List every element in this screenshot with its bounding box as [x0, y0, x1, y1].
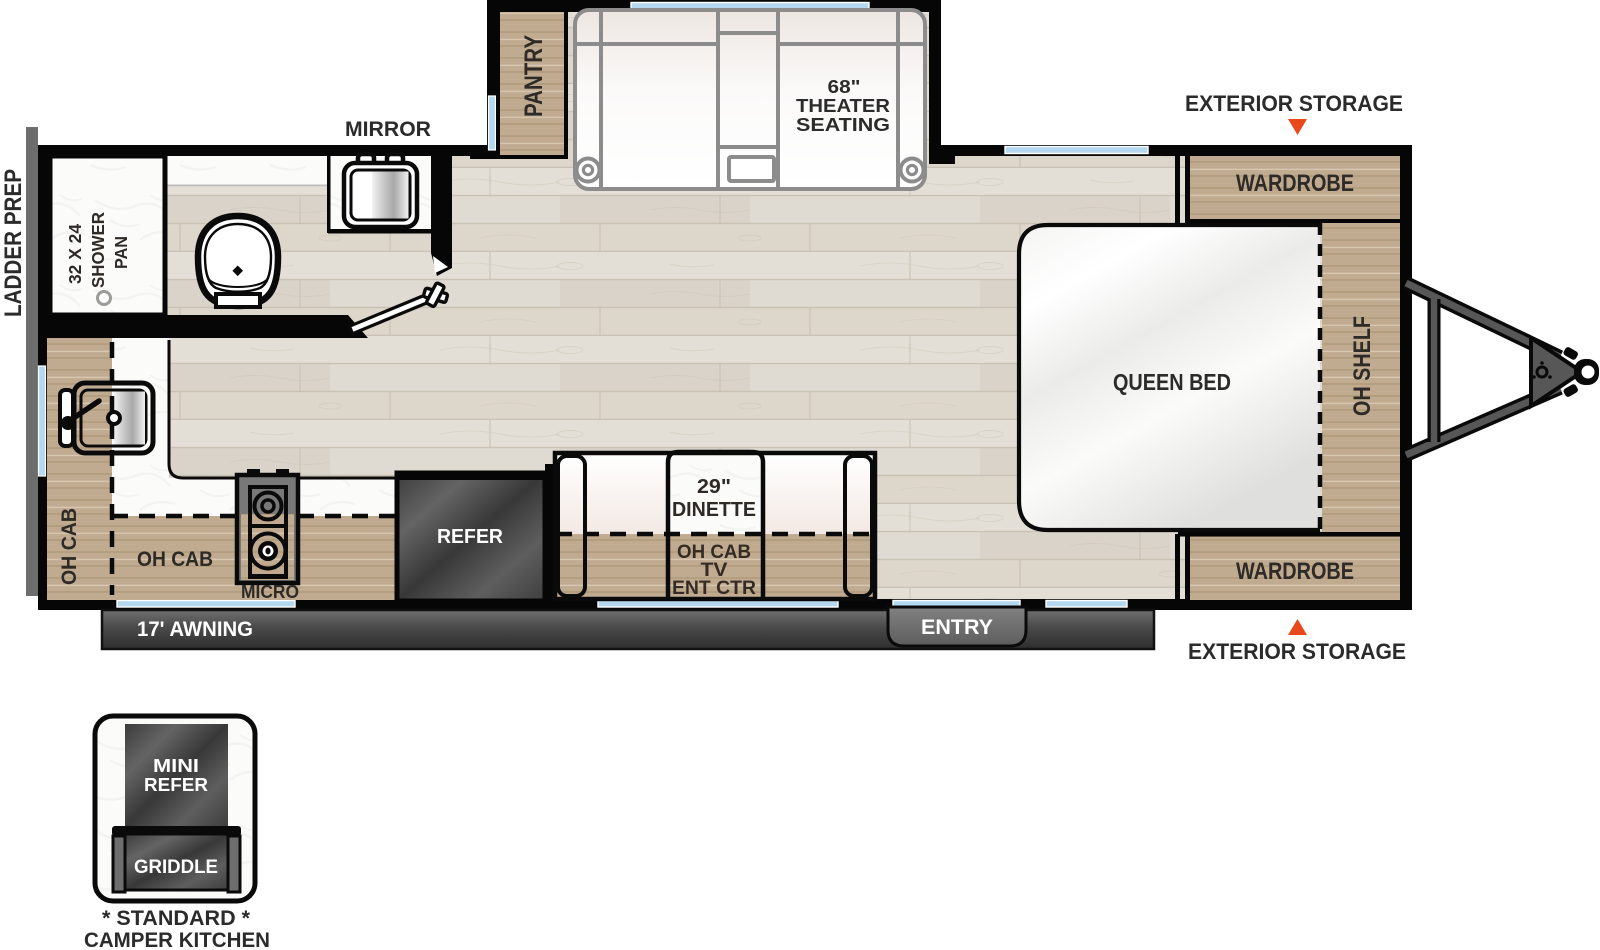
svg-text:SEATING: SEATING	[796, 114, 890, 135]
svg-text:WARDROBE: WARDROBE	[1236, 558, 1354, 585]
svg-text:CAMPER KITCHEN: CAMPER KITCHEN	[84, 929, 270, 950]
svg-text:29": 29"	[697, 476, 731, 498]
svg-text:PANTRY: PANTRY	[520, 35, 548, 117]
svg-text:QUEEN BED: QUEEN BED	[1113, 369, 1231, 395]
svg-text:MINI: MINI	[153, 755, 199, 776]
svg-text:EXTERIOR STORAGE: EXTERIOR STORAGE	[1188, 639, 1406, 664]
svg-text:MIRROR: MIRROR	[345, 117, 431, 141]
svg-text:REFER: REFER	[144, 774, 208, 795]
svg-text:* STANDARD *: * STANDARD *	[102, 907, 251, 930]
svg-text:DINETTE: DINETTE	[672, 499, 756, 521]
svg-text:LADDER PREP: LADDER PREP	[0, 169, 27, 317]
svg-text:REFER: REFER	[437, 526, 504, 548]
svg-text:ENTRY: ENTRY	[921, 616, 993, 639]
svg-text:MICRO: MICRO	[241, 582, 299, 602]
svg-text:OH SHELF: OH SHELF	[1349, 316, 1376, 416]
svg-text:68": 68"	[828, 76, 861, 97]
svg-text:OH CAB: OH CAB	[137, 548, 213, 571]
svg-text:GRIDDLE: GRIDDLE	[134, 857, 218, 878]
svg-text:THEATER: THEATER	[796, 95, 890, 116]
svg-text:OH CAB: OH CAB	[58, 508, 81, 585]
svg-text:SHOWER: SHOWER	[88, 212, 108, 288]
svg-text:PAN: PAN	[111, 236, 131, 269]
svg-text:17' AWNING: 17' AWNING	[137, 618, 253, 641]
svg-text:WARDROBE: WARDROBE	[1236, 170, 1354, 197]
svg-text:ENT CTR: ENT CTR	[672, 578, 756, 599]
svg-text:EXTERIOR STORAGE: EXTERIOR STORAGE	[1185, 91, 1403, 116]
svg-text:32 X 24: 32 X 24	[65, 224, 85, 284]
